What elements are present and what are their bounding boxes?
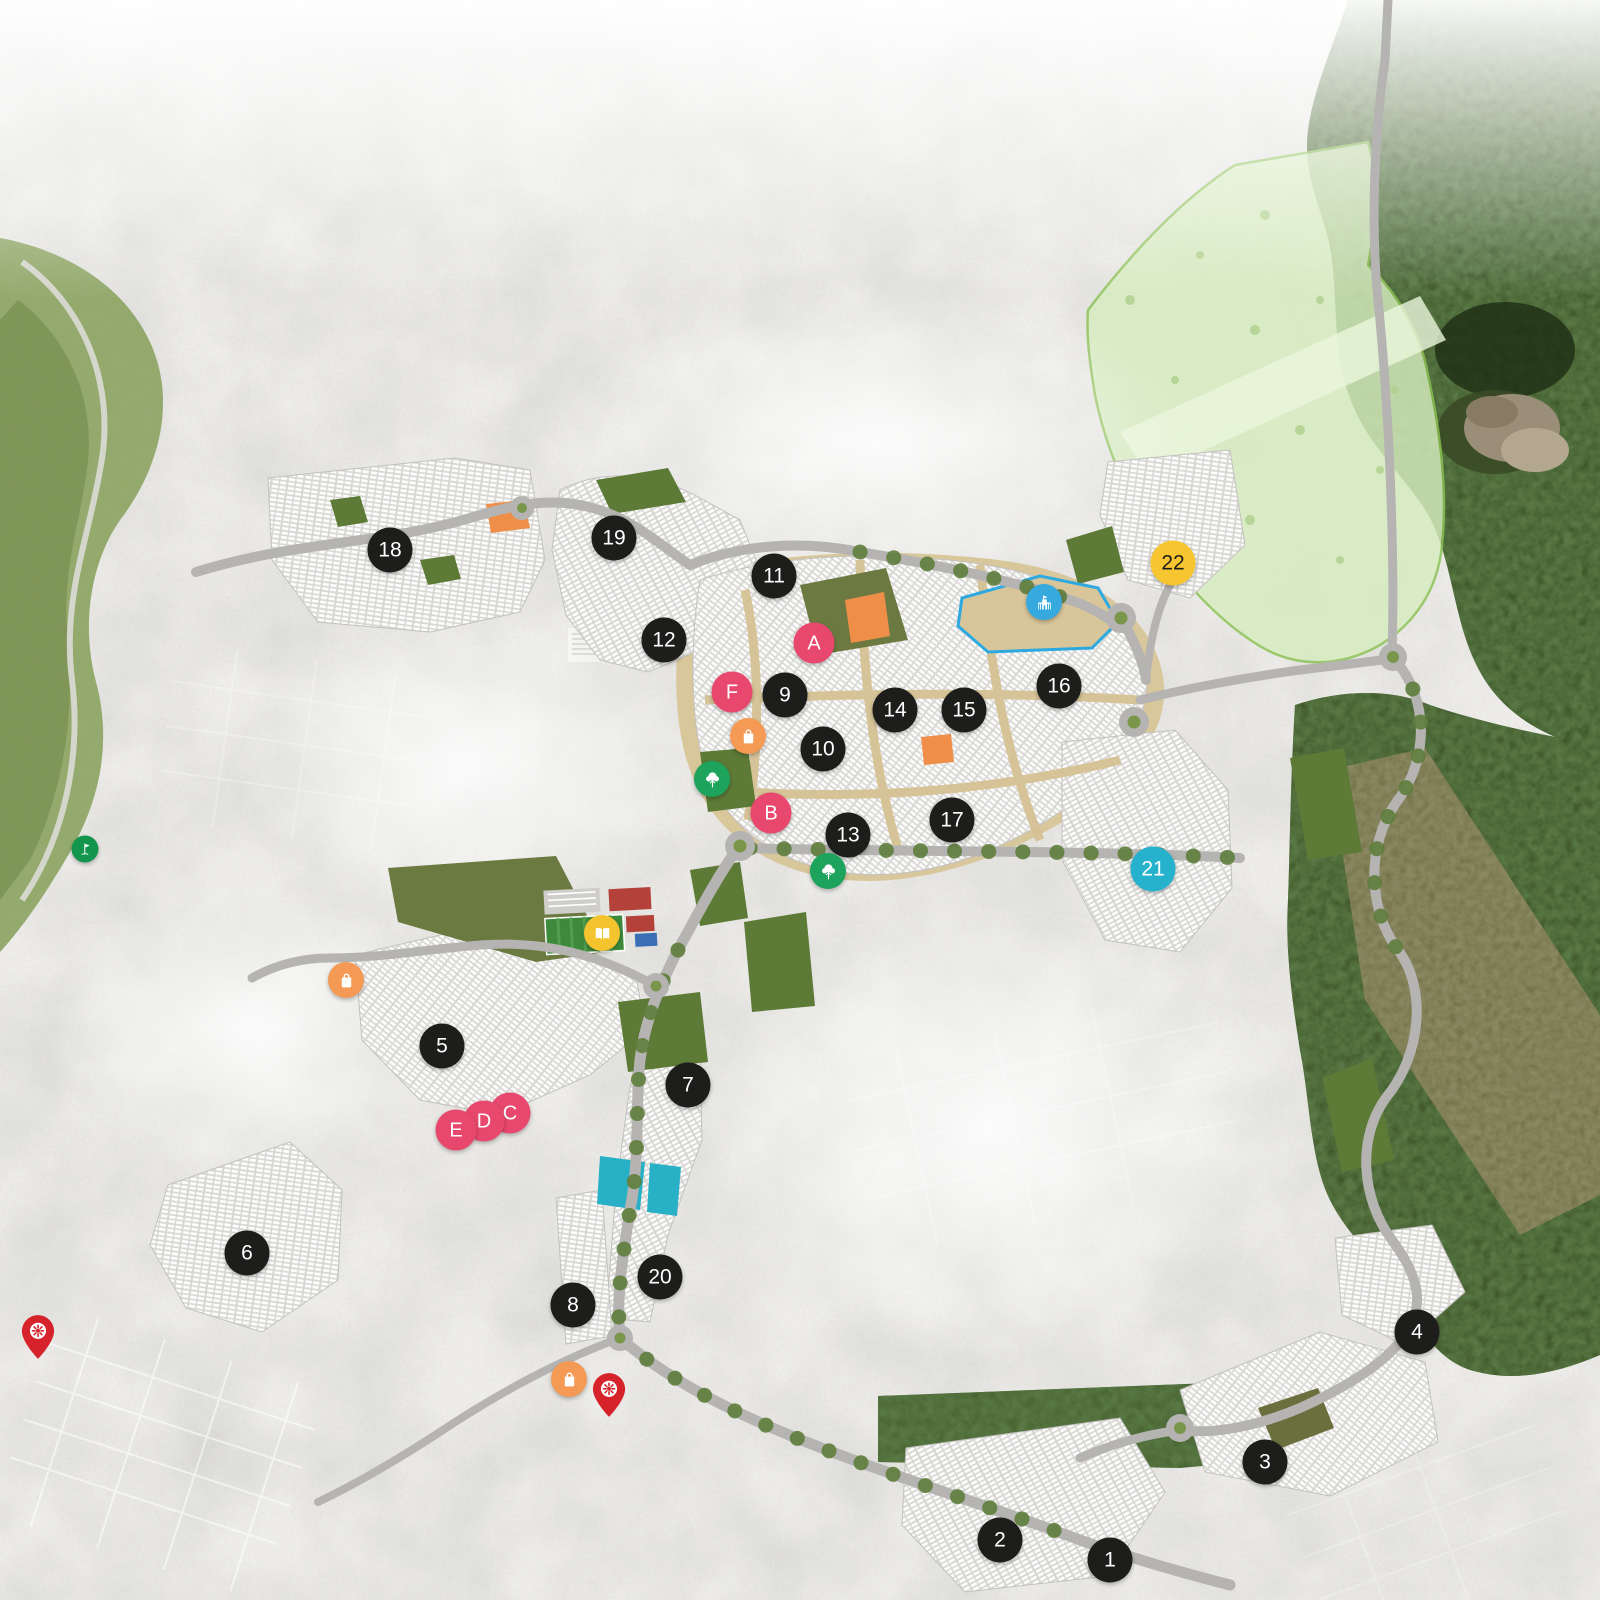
map-marker-b[interactable]: B	[751, 793, 792, 834]
marker-layer: 12345678910111213141516171819202122ABCDE…	[0, 0, 1600, 1600]
golf-flag-marker[interactable]	[72, 836, 99, 863]
map-marker-6[interactable]: 6	[225, 1231, 270, 1276]
map-marker-10[interactable]: 10	[801, 727, 846, 772]
shopping-bag-marker[interactable]	[551, 1361, 587, 1397]
shopping-bag-marker[interactable]	[328, 962, 364, 998]
school-marker[interactable]	[1026, 584, 1062, 620]
map-marker-22[interactable]: 22	[1151, 541, 1196, 586]
map-marker-2[interactable]: 2	[978, 1518, 1023, 1563]
map-marker-1[interactable]: 1	[1088, 1538, 1133, 1583]
map-marker-7[interactable]: 7	[666, 1063, 711, 1108]
map-marker-e[interactable]: E	[436, 1110, 477, 1151]
map-marker-15[interactable]: 15	[942, 688, 987, 733]
map-marker-11[interactable]: 11	[752, 554, 797, 599]
map-marker-5[interactable]: 5	[420, 1024, 465, 1069]
shopping-bag-marker[interactable]	[730, 718, 766, 754]
map-marker-18[interactable]: 18	[368, 528, 413, 573]
map-marker-4[interactable]: 4	[1395, 1310, 1440, 1355]
map-marker-20[interactable]: 20	[638, 1255, 683, 1300]
map-marker-a[interactable]: A	[794, 623, 835, 664]
map-marker-17[interactable]: 17	[930, 798, 975, 843]
map-marker-13[interactable]: 13	[826, 813, 871, 858]
park-tree-marker[interactable]	[810, 853, 846, 889]
open-book-marker[interactable]	[584, 915, 620, 951]
map-marker-8[interactable]: 8	[551, 1283, 596, 1328]
map-marker-9[interactable]: 9	[763, 673, 808, 718]
map-marker-12[interactable]: 12	[642, 618, 687, 663]
map-marker-f[interactable]: F	[712, 672, 753, 713]
park-tree-marker[interactable]	[694, 761, 730, 797]
map-marker-3[interactable]: 3	[1243, 1440, 1288, 1485]
map-marker-19[interactable]: 19	[592, 516, 637, 561]
location-pin-marker[interactable]	[20, 1314, 56, 1360]
map-marker-14[interactable]: 14	[873, 688, 918, 733]
map-marker-21[interactable]: 21	[1131, 847, 1176, 892]
map-marker-16[interactable]: 16	[1037, 664, 1082, 709]
location-pin-marker[interactable]	[591, 1372, 627, 1418]
master-plan-map: 12345678910111213141516171819202122ABCDE…	[0, 0, 1600, 1600]
